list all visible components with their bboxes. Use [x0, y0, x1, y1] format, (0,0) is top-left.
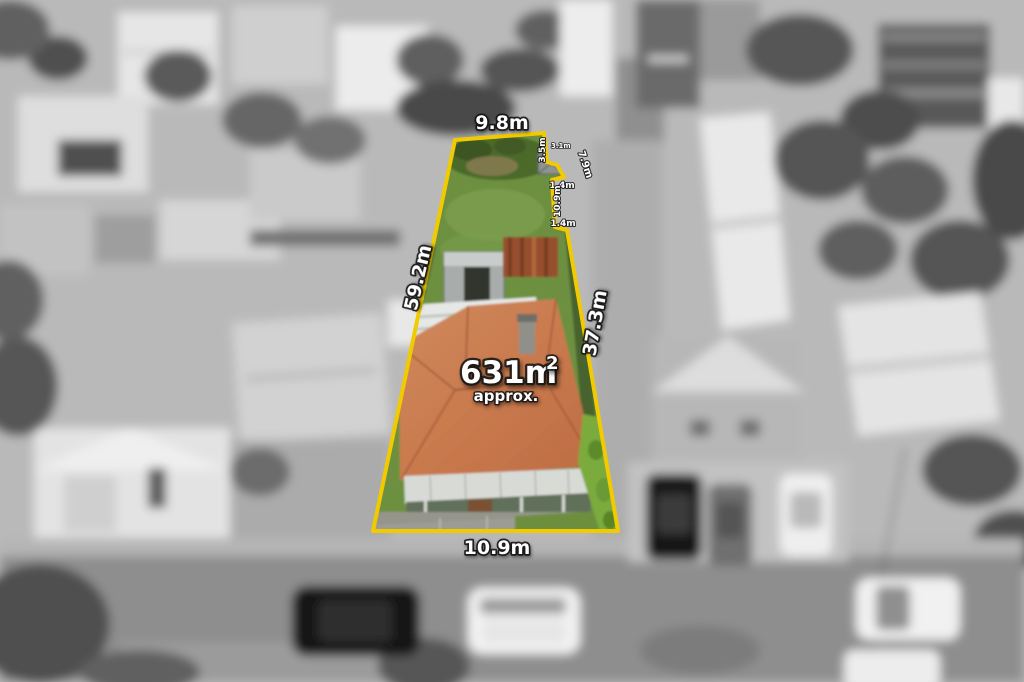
car-parked-black — [646, 474, 702, 560]
car-white-street-right — [856, 578, 960, 640]
area-superscript: 2 — [546, 353, 559, 374]
area-value: 631m — [460, 355, 557, 391]
car-white-partial-bottom — [844, 650, 940, 682]
notch-dimension-label: 3.5m — [538, 137, 548, 162]
rust-roof-shed — [503, 237, 558, 277]
scene-canvas: 9.8m 59.2m 37.3m 10.9m 3.5m 3.1m 7.9m 1.… — [0, 0, 1024, 682]
car-black-street — [292, 586, 420, 656]
dimension-label-bottom: 10.9m — [464, 537, 531, 559]
dimension-label-top: 9.8m — [475, 112, 528, 134]
car-parked-gray — [708, 484, 752, 566]
notch-dimension-label: 1.4m — [550, 219, 575, 229]
car-parked-white — [780, 474, 832, 556]
notch-dimension-label: 10.9m — [553, 185, 563, 217]
car-white-street-center — [468, 588, 580, 654]
gray-shed — [444, 252, 504, 304]
aerial-property-photo: 9.8m 59.2m 37.3m 10.9m 3.5m 3.1m 7.9m 1.… — [0, 0, 1024, 682]
area-qualifier: approx. — [474, 387, 539, 405]
notch-dimension-label: 3.1m — [551, 142, 571, 150]
